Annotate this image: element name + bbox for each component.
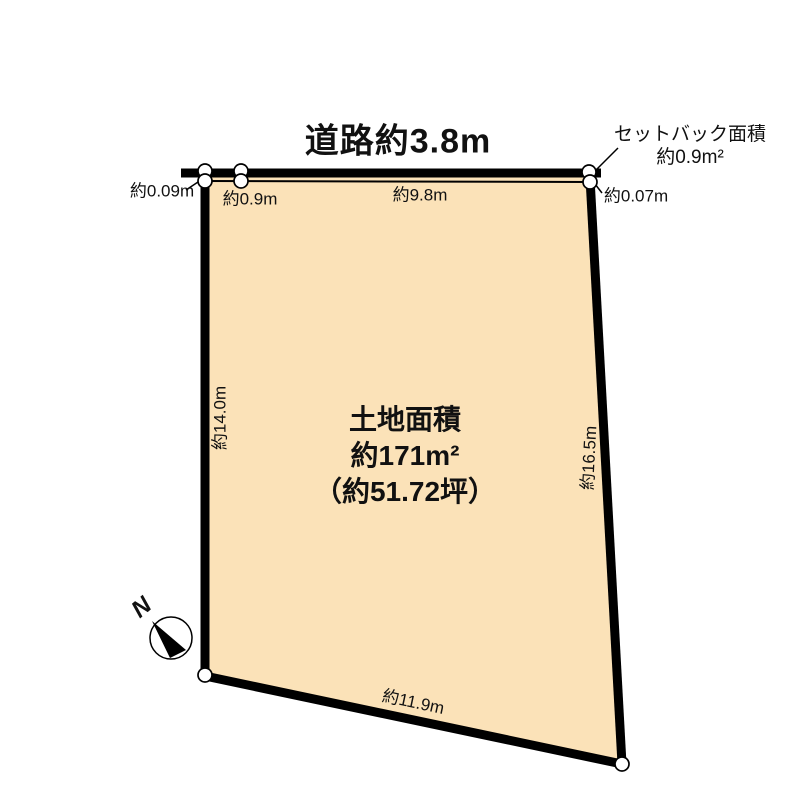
road-label: 道路約3.8m	[305, 123, 492, 160]
dim-side-left: 約14.0m	[212, 386, 231, 450]
land-area-tsubo: （約51.72坪）	[314, 474, 496, 510]
land-area-title: 土地面積	[314, 402, 496, 438]
plot-drawing	[0, 0, 800, 800]
corner-marker	[198, 668, 212, 682]
land-area-sqm: 約171m²	[314, 438, 496, 474]
land-plot-diagram: 道路約3.8m セットバック面積 約0.9m² 約0.09m 約0.9m 約9.…	[0, 0, 800, 800]
dim-side-right: 約16.5m	[579, 425, 601, 490]
setback-note: セットバック面積 約0.9m²	[614, 123, 766, 169]
corner-marker	[234, 174, 248, 188]
corner-marker	[583, 175, 597, 189]
corner-marker	[198, 174, 212, 188]
setback-area: 約0.9m²	[614, 146, 766, 169]
compass	[150, 617, 192, 659]
dim-offset-top-right: 約0.07m	[604, 188, 668, 207]
land-area-block: 土地面積 約171m² （約51.72坪）	[314, 402, 496, 510]
setback-boundary-line	[205, 181, 590, 182]
dim-offset-top-left: 約0.09m	[130, 183, 194, 202]
setback-title: セットバック面積	[614, 123, 766, 146]
corner-marker	[615, 757, 629, 771]
dim-frontage-main: 約9.8m	[393, 187, 448, 206]
dim-frontage-left: 約0.9m	[223, 191, 278, 210]
